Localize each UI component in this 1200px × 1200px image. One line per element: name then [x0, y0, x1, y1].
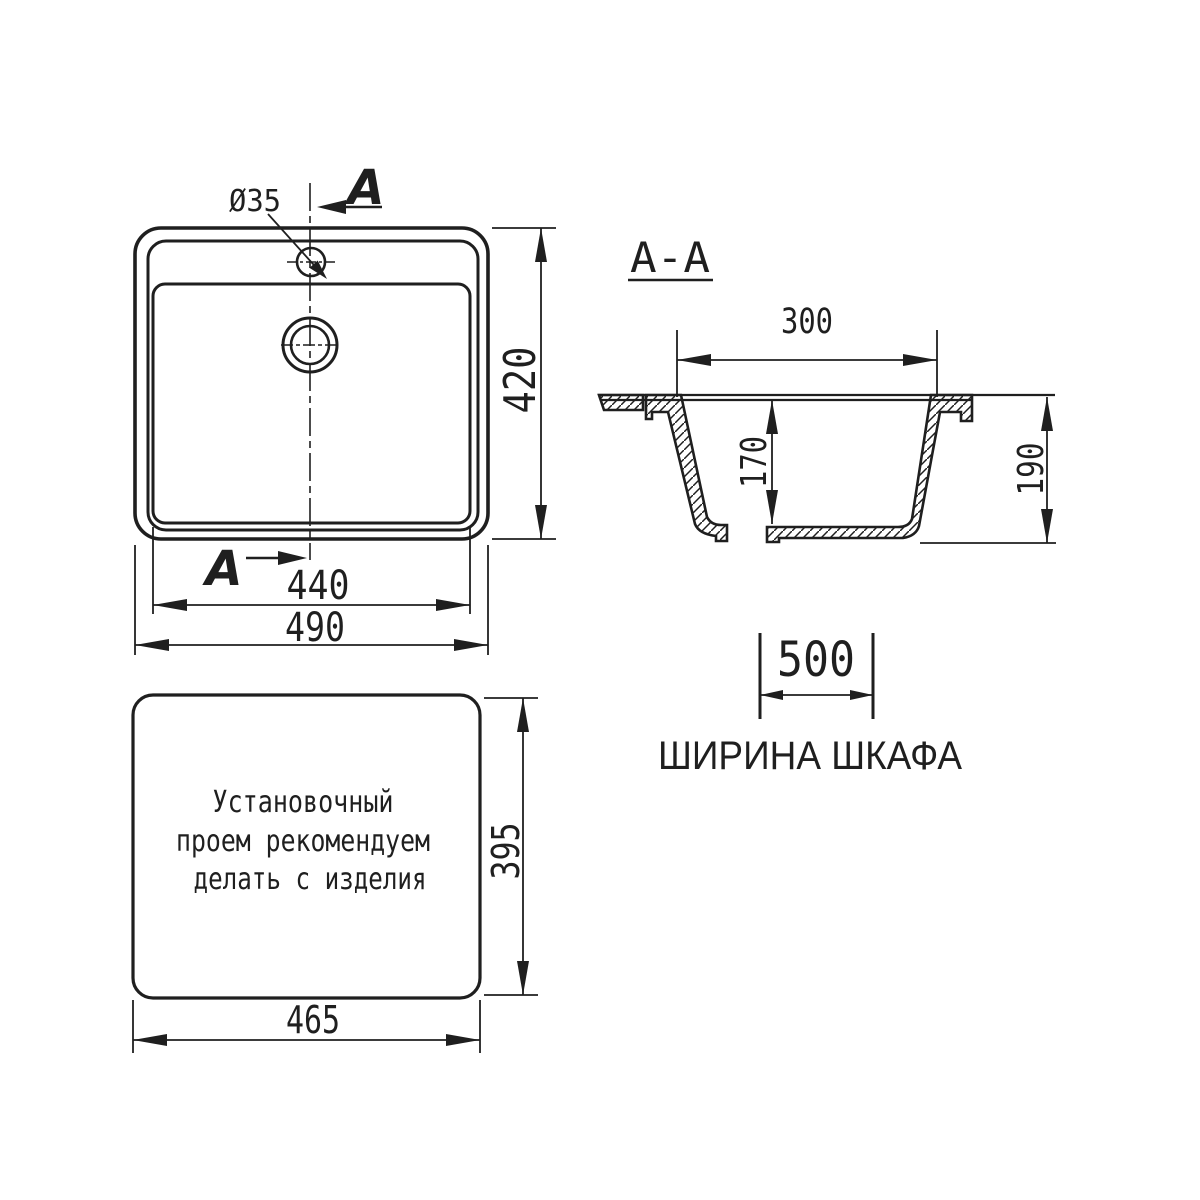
sink-section-right-wall [767, 395, 972, 542]
dim-420: 420 [492, 228, 556, 539]
dim-465: 465 [133, 998, 480, 1053]
hole-diameter-label: Ø35 [229, 184, 281, 219]
section-view: A-A 300 170 [598, 233, 1056, 543]
dim-190: 190 [920, 397, 1056, 543]
dim-490-label: 490 [285, 605, 345, 651]
sink-section-left-wall [646, 395, 727, 541]
section-letter-bottom: A [201, 541, 242, 597]
dim-395-label: 395 [484, 823, 528, 880]
sink-outer-outline [135, 228, 488, 539]
dim-440-label: 440 [287, 563, 350, 609]
section-letter-top: A [343, 160, 384, 216]
countertop-left [599, 395, 643, 410]
cutout-note-line3: делать с изделия [194, 862, 427, 897]
dim-500-label: 500 [777, 632, 855, 688]
cutout-note-line2: проем рекомендуем [176, 824, 430, 859]
cutout-view: Установочный проем рекомендуем делать с … [133, 695, 538, 1053]
cabinet-width-caption: ШИРИНА ШКАФА [658, 734, 962, 778]
sink-bowl-outline [153, 284, 470, 523]
dim-300-label: 300 [781, 302, 833, 342]
dim-170: 170 [734, 400, 778, 524]
cabinet-width-note: 500 ШИРИНА ШКАФА [658, 632, 962, 778]
section-cut-top: A [317, 160, 385, 216]
section-title: A-A [630, 233, 710, 282]
faucet-hole-callout: Ø35 [229, 184, 327, 279]
drawing-page: Ø35 A A 420 440 [0, 0, 1200, 1200]
dim-395: 395 [484, 698, 538, 995]
dim-190-label: 190 [1011, 443, 1052, 496]
dim-300: 300 [677, 302, 937, 397]
top-view: Ø35 A A 420 440 [135, 160, 556, 655]
section-arrow-top [317, 200, 346, 214]
cutout-note-line1: Установочный [213, 785, 394, 820]
technical-drawing-canvas: Ø35 A A 420 440 [0, 0, 1200, 1200]
dim-420-label: 420 [495, 347, 546, 414]
dim-465-label: 465 [286, 998, 340, 1042]
dim-170-label: 170 [734, 436, 775, 488]
